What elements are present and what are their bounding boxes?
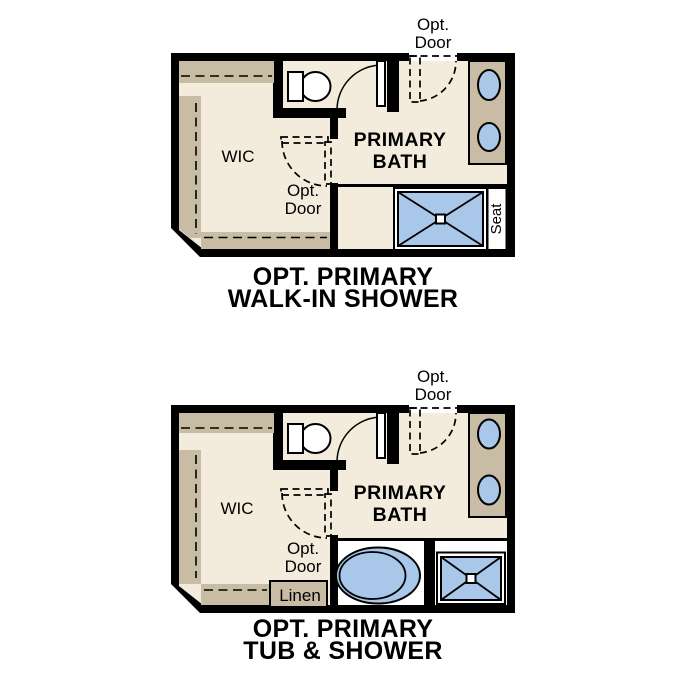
optional-door-opening: [409, 405, 457, 413]
toilet-room-jamb-wall: [387, 61, 399, 112]
closet-shelf-top: [179, 413, 274, 433]
opt-door-label-top-line1: Opt.: [417, 367, 449, 386]
room-label-line1: PRIMARY: [354, 129, 447, 151]
sink-icon: [478, 420, 500, 449]
linen-label: Linen: [279, 586, 321, 605]
closet-shelf-bottom: [201, 232, 330, 249]
opt-door-label-top-line2: Door: [415, 385, 452, 404]
toilet-bowl: [301, 72, 331, 101]
toilet-tank: [288, 424, 303, 453]
room-label-line2: BATH: [373, 151, 428, 173]
plan-caption-line2: TUB & SHOWER: [243, 637, 442, 665]
wic-label: WIC: [220, 499, 253, 518]
room-label-line2: BATH: [373, 504, 428, 526]
tub-shower-divider-wall: [424, 538, 435, 613]
toilet-room-jamb-wall: [387, 413, 399, 464]
sink-icon: [478, 70, 500, 100]
shower-glass-line: [334, 184, 507, 187]
wic-label: WIC: [221, 147, 254, 166]
optional-door-opening: [409, 53, 457, 61]
opt-door-label-mid-line1: Opt.: [287, 181, 319, 200]
wic-wall-lower: [330, 183, 338, 249]
opt-door-label-top-line1: Opt.: [417, 15, 449, 34]
plan-walk-in-shower: Opt. Door WIC PRIMARY BATH Opt. Door Sea…: [171, 15, 515, 313]
toilet-tank: [288, 72, 303, 101]
closet-shelf-top: [179, 61, 274, 83]
tub-icon: [336, 548, 420, 604]
tub-outer-rim: [336, 548, 420, 604]
wic-wall-upper-stub: [330, 108, 338, 139]
toilet-bowl: [301, 424, 331, 453]
closet-shelf-left: [179, 450, 201, 584]
toilet-icon: [288, 72, 331, 101]
shower-drain-icon: [436, 215, 445, 224]
plan-tub-shower: Opt. Door WIC PRIMARY BATH Opt. Door Lin…: [171, 367, 515, 665]
sink-icon: [478, 476, 500, 505]
sink-icon: [478, 123, 500, 151]
closet-shelf-bottom: [201, 584, 270, 605]
room-label-line1: PRIMARY: [354, 482, 447, 504]
floor-plans-svg: Opt. Door WIC PRIMARY BATH Opt. Door Sea…: [0, 0, 687, 687]
toilet-icon: [288, 424, 331, 453]
opt-door-label-mid-line1: Opt.: [287, 539, 319, 558]
shower-drain-icon: [467, 574, 476, 583]
opt-door-label-mid-line2: Door: [285, 557, 322, 576]
floor-plan-sheet: Opt. Door WIC PRIMARY BATH Opt. Door Sea…: [0, 0, 687, 687]
door-leaf: [377, 413, 385, 458]
wic-wall-upper-stub: [330, 460, 338, 491]
opt-door-label-top-line2: Door: [415, 33, 452, 52]
closet-shelf-left: [179, 96, 201, 238]
plan-caption-line2: WALK-IN SHOWER: [228, 285, 459, 313]
door-leaf: [377, 61, 385, 106]
tub-shower-curb-line: [338, 538, 507, 541]
seat-label: Seat: [488, 203, 505, 235]
opt-door-label-mid-line2: Door: [285, 199, 322, 218]
